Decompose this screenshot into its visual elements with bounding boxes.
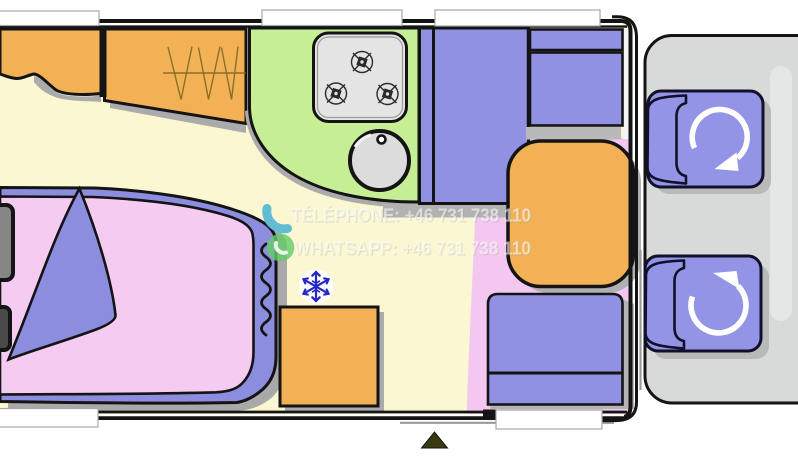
svg-text:WHATSAPP: +46 731 738 110: WHATSAPP: +46 731 738 110 — [294, 238, 531, 259]
svg-text:TÉLÉPHONE: +46 731 738 110: TÉLÉPHONE: +46 731 738 110 — [291, 205, 531, 226]
